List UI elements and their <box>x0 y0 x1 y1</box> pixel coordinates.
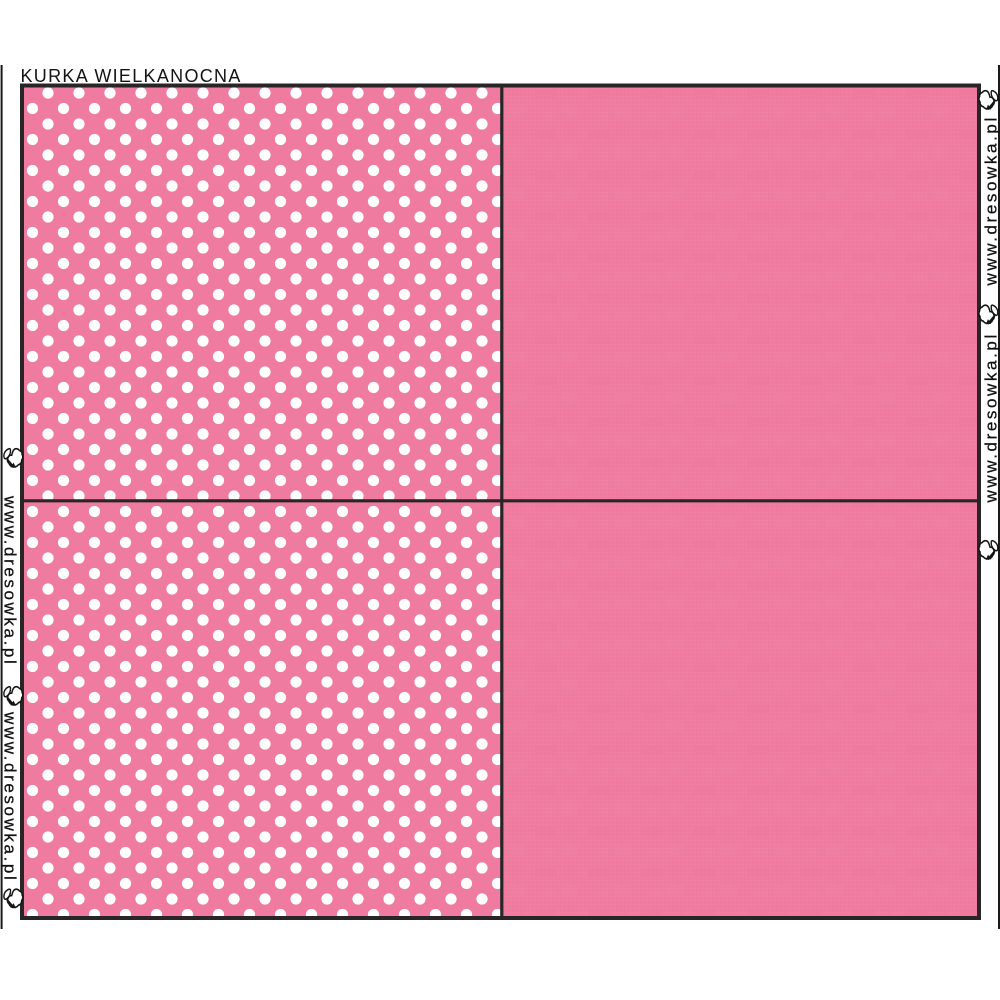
svg-text:www.dresowka.pl: www.dresowka.pl <box>982 115 1000 286</box>
svg-text:www.dresowka.pl: www.dresowka.pl <box>1 711 20 882</box>
svg-text:KURKA WIELKANOCNA: KURKA WIELKANOCNA <box>21 66 242 86</box>
svg-text:www.dresowka.pl: www.dresowka.pl <box>1 495 20 666</box>
svg-text:www.dresowka.pl: www.dresowka.pl <box>982 332 1000 503</box>
